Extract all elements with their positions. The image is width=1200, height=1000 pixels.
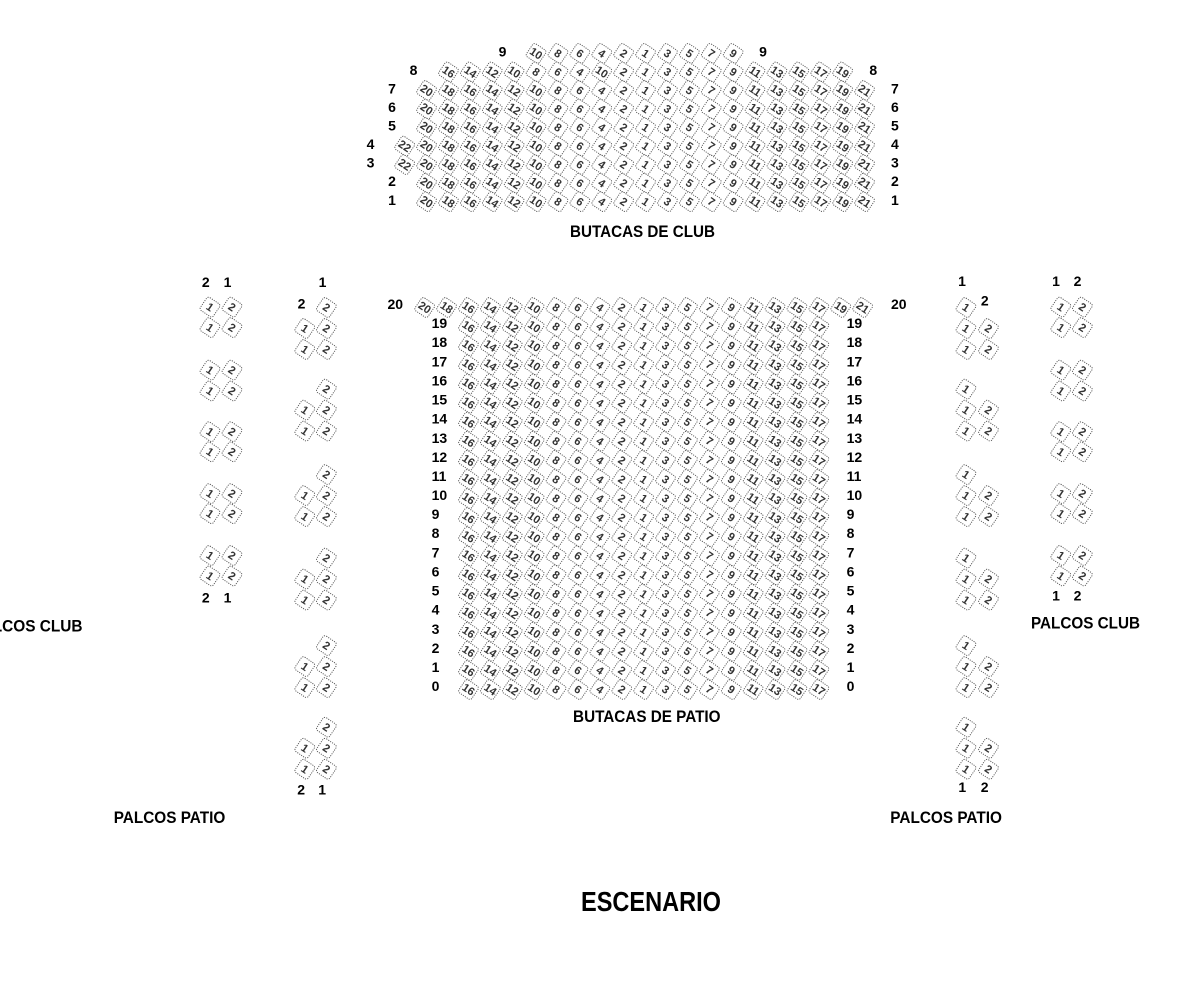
svg-text:7: 7 — [847, 544, 855, 560]
svg-text:2: 2 — [202, 589, 210, 605]
svg-text:5: 5 — [432, 583, 440, 599]
svg-text:18: 18 — [432, 334, 448, 350]
svg-text:8: 8 — [410, 62, 418, 78]
svg-text:13: 13 — [847, 430, 863, 446]
svg-text:1: 1 — [1052, 588, 1060, 604]
svg-text:5: 5 — [847, 583, 855, 599]
svg-text:5: 5 — [891, 118, 899, 134]
svg-text:15: 15 — [847, 392, 863, 408]
svg-text:7: 7 — [388, 81, 396, 97]
svg-text:6: 6 — [388, 99, 396, 115]
svg-text:2: 2 — [891, 173, 899, 189]
svg-text:1: 1 — [432, 659, 440, 675]
svg-text:19: 19 — [432, 315, 448, 331]
svg-text:2: 2 — [981, 293, 989, 309]
svg-text:PALCOS PATIO: PALCOS PATIO — [114, 808, 226, 827]
svg-text:17: 17 — [847, 353, 863, 369]
svg-text:4: 4 — [847, 602, 855, 618]
svg-text:2: 2 — [847, 640, 855, 656]
svg-text:2: 2 — [1074, 273, 1082, 289]
svg-text:9: 9 — [499, 43, 507, 59]
svg-text:8: 8 — [847, 525, 855, 541]
svg-text:6: 6 — [432, 563, 440, 579]
svg-text:9: 9 — [847, 506, 855, 522]
svg-text:1: 1 — [1052, 273, 1060, 289]
svg-text:2: 2 — [981, 779, 989, 795]
svg-text:12: 12 — [847, 449, 863, 465]
svg-text:1: 1 — [318, 782, 326, 798]
svg-text:PALCOS CLUB: PALCOS CLUB — [0, 617, 83, 636]
svg-text:16: 16 — [847, 372, 863, 388]
svg-text:14: 14 — [432, 411, 448, 427]
svg-text:0: 0 — [847, 678, 855, 694]
svg-text:14: 14 — [847, 411, 863, 427]
svg-text:BUTACAS DE CLUB: BUTACAS DE CLUB — [570, 222, 715, 241]
svg-text:2: 2 — [297, 782, 305, 798]
svg-text:10: 10 — [847, 487, 863, 503]
svg-text:19: 19 — [847, 315, 863, 331]
svg-text:1: 1 — [319, 274, 327, 290]
svg-text:1: 1 — [958, 779, 966, 795]
svg-text:7: 7 — [432, 544, 440, 560]
svg-text:6: 6 — [847, 563, 855, 579]
svg-text:16: 16 — [432, 372, 448, 388]
svg-text:17: 17 — [432, 353, 448, 369]
svg-text:20: 20 — [388, 296, 404, 312]
svg-text:11: 11 — [847, 468, 862, 484]
svg-text:1: 1 — [388, 192, 396, 208]
svg-text:10: 10 — [432, 487, 448, 503]
svg-text:8: 8 — [869, 62, 877, 78]
svg-text:9: 9 — [432, 506, 440, 522]
svg-text:1: 1 — [958, 273, 966, 289]
svg-text:18: 18 — [847, 334, 863, 350]
svg-text:7: 7 — [891, 81, 899, 97]
svg-text:4: 4 — [367, 136, 375, 152]
svg-text:2: 2 — [1074, 588, 1082, 604]
svg-text:PALCOS PATIO: PALCOS PATIO — [890, 808, 1002, 827]
svg-text:15: 15 — [432, 392, 448, 408]
svg-text:PALCOS CLUB: PALCOS CLUB — [1031, 614, 1140, 633]
svg-text:12: 12 — [432, 449, 448, 465]
svg-text:2: 2 — [432, 640, 440, 656]
svg-text:3: 3 — [367, 155, 375, 171]
svg-text:2: 2 — [298, 296, 306, 312]
svg-text:0: 0 — [432, 678, 440, 694]
svg-text:3: 3 — [847, 621, 855, 637]
svg-text:ESCENARIO: ESCENARIO — [581, 886, 721, 917]
svg-text:8: 8 — [432, 525, 440, 541]
svg-text:1: 1 — [224, 274, 232, 290]
svg-text:11: 11 — [432, 468, 447, 484]
svg-text:5: 5 — [388, 118, 396, 134]
svg-text:4: 4 — [891, 136, 899, 152]
svg-text:13: 13 — [432, 430, 448, 446]
svg-text:9: 9 — [759, 43, 767, 59]
svg-text:1: 1 — [847, 659, 855, 675]
svg-text:1: 1 — [224, 589, 232, 605]
svg-text:2: 2 — [388, 173, 396, 189]
svg-text:4: 4 — [432, 602, 440, 618]
svg-text:6: 6 — [891, 99, 899, 115]
svg-text:1: 1 — [891, 192, 899, 208]
svg-text:20: 20 — [891, 296, 907, 312]
svg-text:3: 3 — [891, 155, 899, 171]
svg-text:3: 3 — [432, 621, 440, 637]
svg-text:BUTACAS DE PATIO: BUTACAS DE PATIO — [573, 707, 721, 726]
svg-text:2: 2 — [202, 274, 210, 290]
